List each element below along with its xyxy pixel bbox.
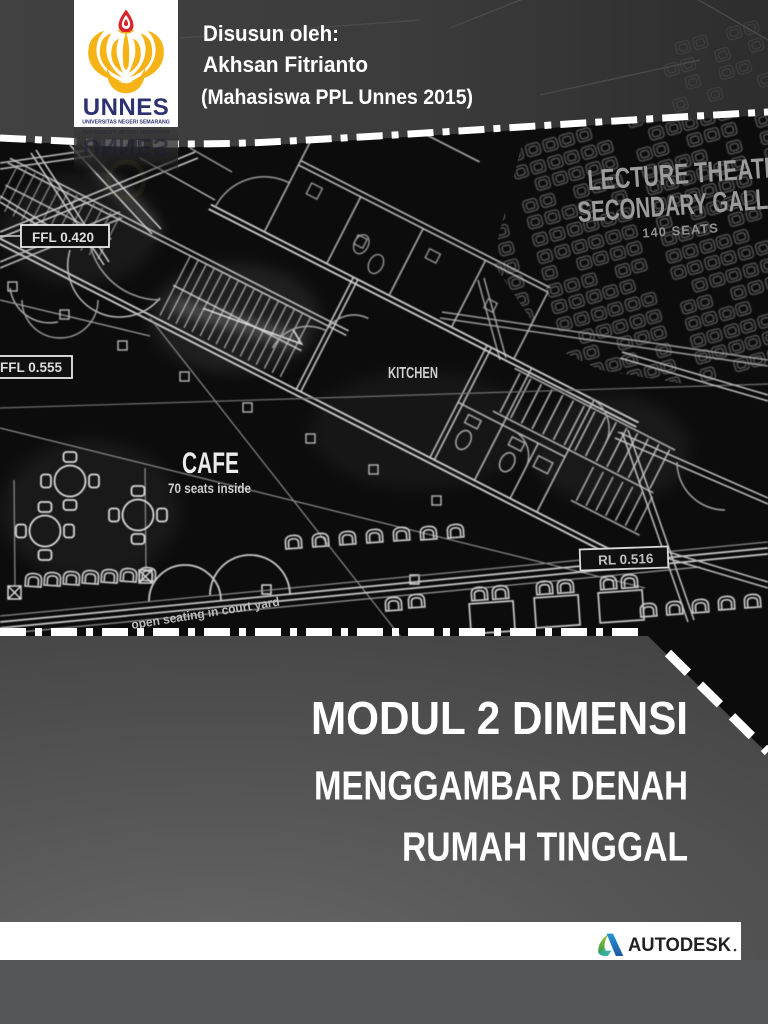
- svg-text:MENGGAMBAR DENAH: MENGGAMBAR DENAH: [314, 763, 688, 809]
- svg-text:UNIVERSITAS NEGERI SEMARANG: UNIVERSITAS NEGERI SEMARANG: [82, 120, 170, 126]
- svg-text:KITCHEN: KITCHEN: [388, 365, 438, 382]
- svg-text:CAFE: CAFE: [182, 447, 239, 480]
- svg-text:MODUL 2 DIMENSI: MODUL 2 DIMENSI: [311, 692, 688, 744]
- svg-text:70 seats inside: 70 seats inside: [168, 481, 251, 496]
- svg-text:Akhsan Fitrianto: Akhsan Fitrianto: [203, 52, 368, 77]
- svg-text:Disusun oleh:: Disusun oleh:: [203, 21, 339, 46]
- svg-text:UNIVERSITAS NEGERI SEMARANG: UNIVERSITAS NEGERI SEMARANG: [82, 128, 170, 134]
- svg-text:AUTODESK: AUTODESK: [628, 935, 731, 956]
- svg-text:FFL 0.555: FFL 0.555: [0, 360, 63, 375]
- svg-text:FFL 0.420: FFL 0.420: [32, 230, 94, 245]
- svg-text:RL 0.516: RL 0.516: [598, 551, 654, 568]
- svg-text:RUMAH TINGGAL: RUMAH TINGGAL: [402, 824, 688, 870]
- svg-text:UNNES: UNNES: [83, 133, 170, 160]
- svg-text:(Mahasiswa PPL Unnes 2015): (Mahasiswa PPL Unnes 2015): [201, 86, 473, 109]
- svg-text:UNNES: UNNES: [83, 94, 170, 121]
